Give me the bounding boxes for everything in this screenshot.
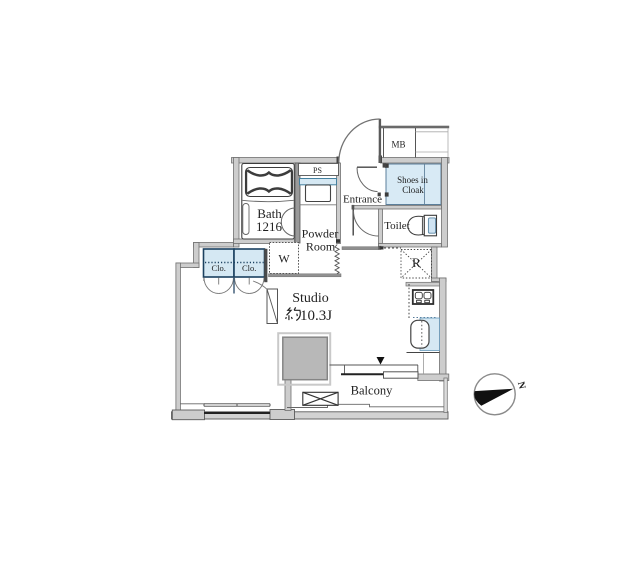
svg-text:Clo.: Clo. [242,263,256,273]
svg-text:MB: MB [391,139,405,149]
svg-text:Studio: Studio [292,291,329,306]
svg-text:Room: Room [306,240,336,254]
svg-text:Powder: Powder [302,226,339,240]
svg-text:W: W [278,251,290,265]
svg-text:R: R [412,255,421,270]
svg-text:PS: PS [313,166,322,175]
svg-text:Entrance: Entrance [343,193,382,205]
svg-text:Balcony: Balcony [351,384,393,398]
svg-text:1216: 1216 [256,219,283,234]
svg-text:10.3J: 10.3J [300,308,332,324]
svg-text:Clo.: Clo. [211,263,225,273]
svg-text:Shoes in: Shoes in [397,175,428,185]
svg-text:Toilet: Toilet [384,220,410,232]
svg-text:Cloak: Cloak [402,185,424,195]
